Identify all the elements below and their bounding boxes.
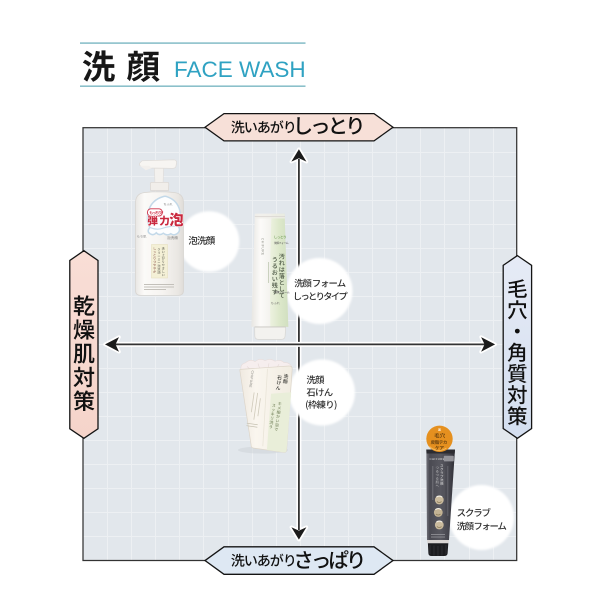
- svg-text:FACE WASH: FACE WASH: [174, 57, 306, 82]
- svg-text:CHIFURE: CHIFURE: [261, 238, 265, 256]
- svg-text:CHIFURE: CHIFURE: [430, 457, 445, 461]
